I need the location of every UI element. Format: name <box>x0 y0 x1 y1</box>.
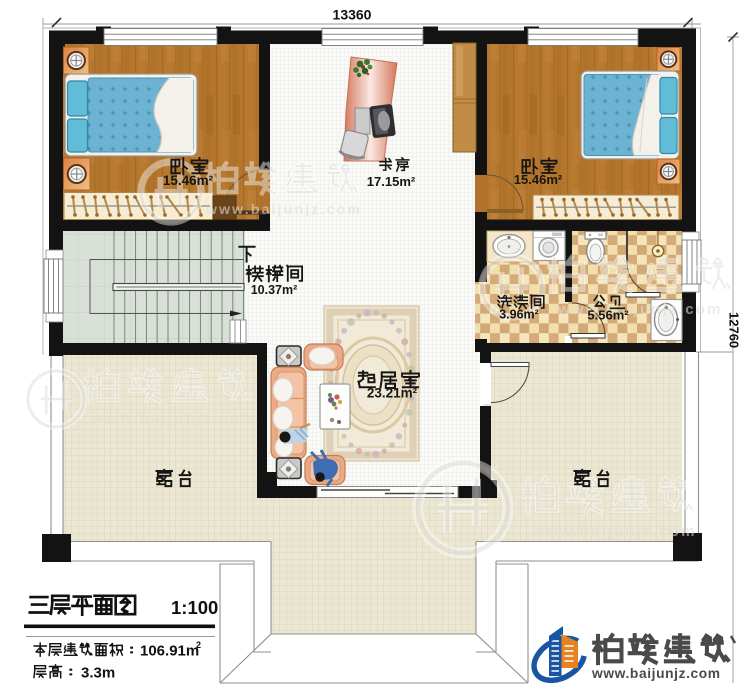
svg-text:15.46m²: 15.46m² <box>163 173 214 188</box>
svg-text:5.56m²: 5.56m² <box>587 308 629 323</box>
svg-text:12760: 12760 <box>727 312 742 348</box>
svg-text:www.baijunjz.com: www.baijunjz.com <box>205 201 362 217</box>
svg-text:17.15m²: 17.15m² <box>367 174 416 189</box>
svg-text:13360: 13360 <box>333 7 372 23</box>
svg-text:15.46m²: 15.46m² <box>514 172 563 187</box>
svg-text:3.96m²: 3.96m² <box>499 308 539 322</box>
svg-text:23.21m²: 23.21m² <box>367 386 418 401</box>
svg-text:10.37m²: 10.37m² <box>251 283 298 297</box>
svg-text:1:100: 1:100 <box>171 597 218 618</box>
svg-text:www.baijunjz.com: www.baijunjz.com <box>591 666 721 681</box>
svg-text:www.baijunjz.com: www.baijunjz.com <box>531 523 697 540</box>
svg-text:www.baijunjz.com: www.baijunjz.com <box>557 301 723 318</box>
svg-text:www.baijunjz.com: www.baijunjz.com <box>91 410 257 427</box>
svg-text:3.3m: 3.3m <box>81 665 115 682</box>
svg-text:2: 2 <box>196 640 201 650</box>
svg-text:106.91m: 106.91m <box>140 643 199 660</box>
